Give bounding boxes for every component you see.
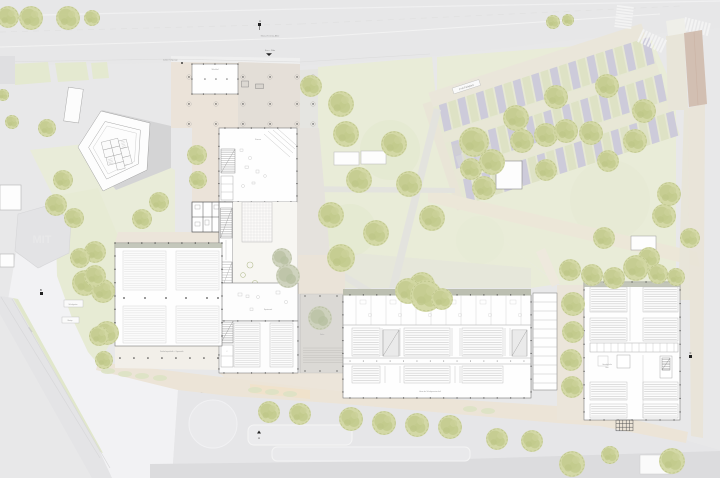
svg-text:Maria-Theresia-Allee: Maria-Theresia-Allee (261, 35, 280, 38)
svg-text:Werkhof: Werkhof (212, 69, 219, 71)
svg-text:Biotop: Biotop (68, 319, 73, 322)
svg-text:Speisesaal: Speisesaal (264, 309, 273, 311)
svg-text:K: K (226, 351, 227, 353)
svg-text:Forum: Forum (255, 139, 261, 141)
svg-text:Kiss + Ride: Kiss + Ride (265, 50, 276, 52)
svg-text:Dreifachsporthalle + Gymnastik: Dreifachsporthalle + Gymnastik (160, 350, 184, 353)
svg-text:Haus der Schulgemeinschaft: Haus der Schulgemeinschaft (419, 390, 441, 393)
svg-text:MIT: MIT (33, 234, 52, 246)
svg-text:Schulgarten: Schulgarten (68, 303, 77, 306)
svg-text:Grundschule: Grundschule (602, 363, 612, 366)
svg-text:Zufahrt Tiefgarage: Zufahrt Tiefgarage (163, 59, 178, 62)
